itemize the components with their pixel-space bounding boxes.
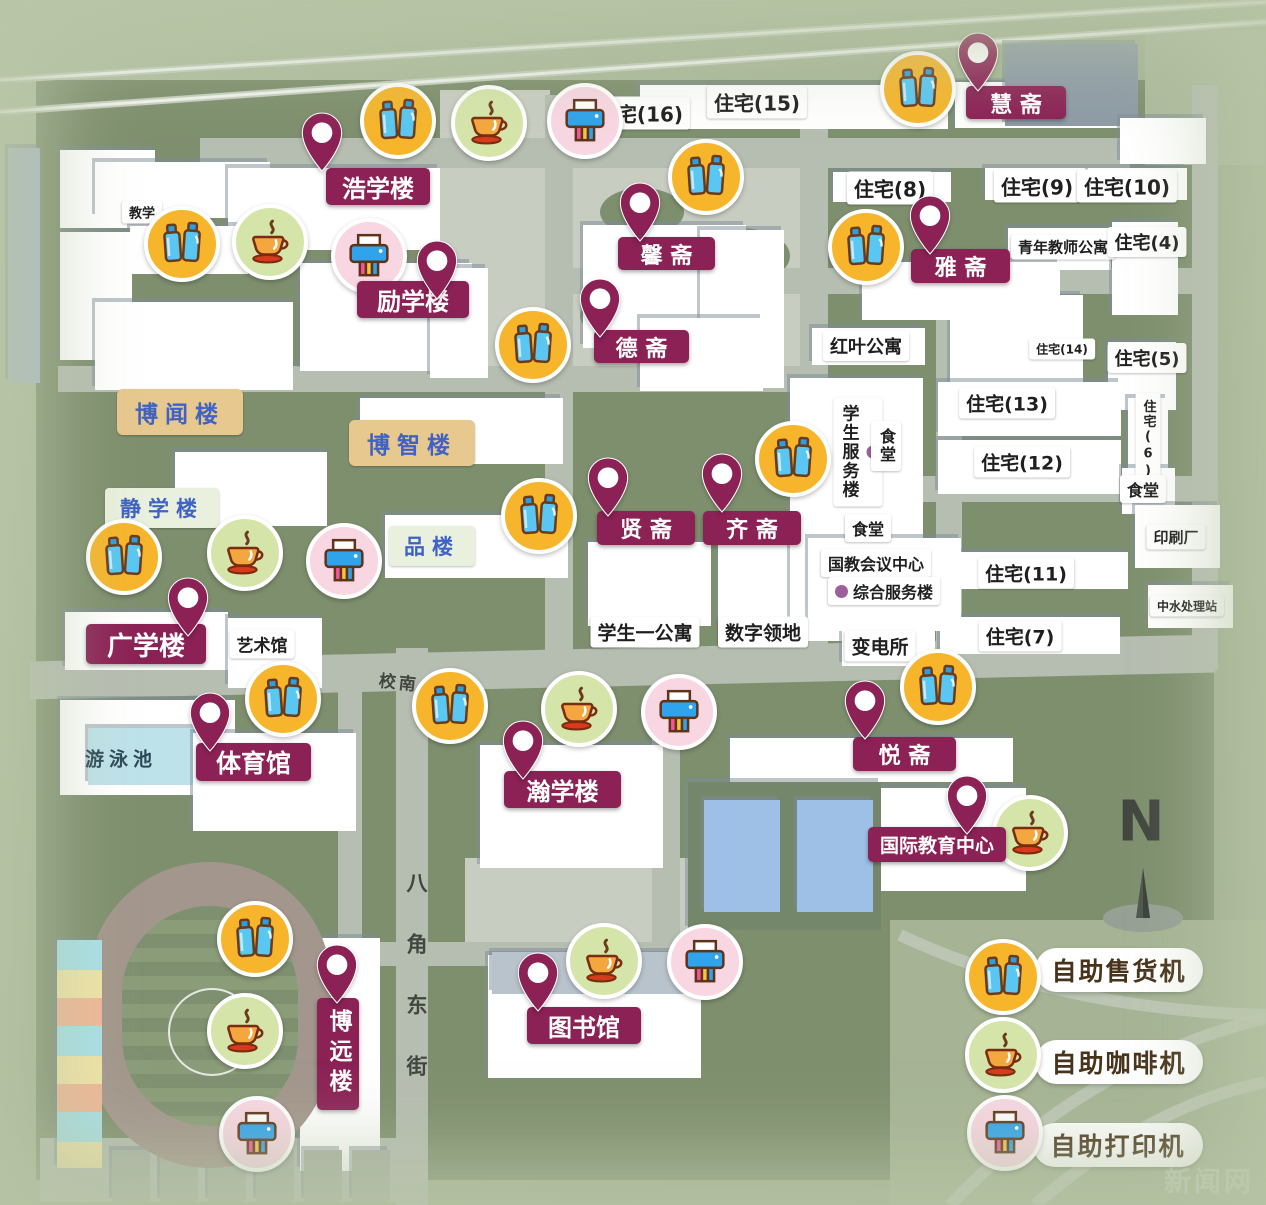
building-label: 青年教师公寓 bbox=[1011, 235, 1115, 260]
building-label: 住宅(13) bbox=[959, 388, 1055, 419]
compass-north-label: N bbox=[1118, 790, 1165, 855]
location-pin bbox=[617, 182, 663, 242]
vending-machine-icon bbox=[360, 83, 436, 159]
vending-machine-icon bbox=[495, 307, 571, 383]
printer-machine-icon bbox=[306, 523, 382, 599]
building-label: 住宅(12) bbox=[974, 447, 1070, 478]
building-label: 数字领地 bbox=[718, 617, 808, 648]
building-label-text: 数字领地 bbox=[725, 619, 801, 646]
campus-map: 住宅(16)住宅(15)住宅(8)住宅(9)住宅(10)青年教师公寓住宅(4)住… bbox=[0, 0, 1266, 1205]
building-label-text: 住宅(4) bbox=[1115, 229, 1180, 255]
location-pin bbox=[585, 457, 631, 517]
building-label: 住宅(5) bbox=[1108, 343, 1187, 373]
building-label: 住宅(10) bbox=[1077, 170, 1177, 203]
location-pin bbox=[577, 278, 623, 338]
building-label: 住宅(6) bbox=[1136, 393, 1161, 488]
coffee-machine-icon bbox=[541, 671, 617, 747]
building-label: 艺术馆 bbox=[230, 630, 295, 659]
vending-machine-icon bbox=[828, 209, 904, 285]
building-label: 食堂 bbox=[871, 421, 901, 471]
building-label-text: 食堂 bbox=[1127, 477, 1159, 501]
coffee-machine-icon bbox=[207, 515, 283, 591]
building-label: 食堂 bbox=[1120, 475, 1166, 503]
service-dot bbox=[835, 585, 848, 598]
building-label-text: 中水处理站 bbox=[1157, 598, 1217, 615]
location-pin bbox=[515, 952, 561, 1012]
vending-machine-icon bbox=[217, 901, 293, 977]
building-label: 住宅(9) bbox=[994, 170, 1080, 203]
vending-machine-icon bbox=[755, 421, 831, 497]
building-label-text: 博智楼 bbox=[367, 426, 457, 460]
legend-coffee-icon bbox=[965, 1017, 1041, 1093]
building-label: 博闻楼 bbox=[117, 389, 243, 435]
building-label-text: 住宅(12) bbox=[981, 449, 1063, 476]
building-label-text: 变电所 bbox=[851, 633, 908, 660]
building-label-text: 住宅(10) bbox=[1084, 172, 1170, 201]
legend-printer-icon bbox=[967, 1095, 1043, 1171]
location-pin bbox=[299, 112, 345, 172]
building-label-text: 食堂 bbox=[874, 428, 898, 464]
building-label-text: 住宅(7) bbox=[986, 623, 1055, 650]
legend-item-vending: 自助售货机 bbox=[1035, 948, 1203, 992]
location-pin bbox=[314, 944, 360, 1004]
building-label-text: 静学楼 bbox=[120, 493, 204, 523]
building-label-text: 住宅(13) bbox=[966, 390, 1048, 417]
building-label: 变电所 bbox=[844, 631, 915, 662]
poi-banner: 图书馆 bbox=[527, 1007, 641, 1044]
location-pin bbox=[842, 680, 888, 740]
vending-machine-icon bbox=[412, 668, 488, 744]
location-pin bbox=[907, 195, 953, 255]
building-label-text: 游泳池 bbox=[85, 745, 157, 772]
building-label-text: 国教会议中心 bbox=[828, 551, 924, 575]
coffee-machine-icon bbox=[566, 923, 642, 999]
building-label: 游泳池 bbox=[78, 743, 164, 774]
building-label: 住宅(15) bbox=[707, 86, 807, 119]
building-label-text: 住宅(11) bbox=[985, 560, 1067, 587]
watermark: 新闻网 bbox=[1164, 1160, 1254, 1199]
building-label-text: 学生服务楼 bbox=[837, 405, 862, 500]
building-label: 住宅(4) bbox=[1108, 227, 1187, 257]
building-label-text: 食堂 bbox=[852, 516, 884, 540]
location-pin bbox=[187, 692, 233, 752]
building-label-text: 博闻楼 bbox=[135, 395, 225, 429]
building-label-text: 住宅(5) bbox=[1115, 345, 1180, 371]
legend-vending-icon bbox=[965, 939, 1041, 1015]
building-label-text: 住宅(6) bbox=[1139, 400, 1158, 481]
building-label-text: 住宅(14) bbox=[1036, 341, 1088, 358]
poi-banner: 悦 斋 bbox=[853, 737, 956, 771]
poi-banner: 博远楼 bbox=[317, 998, 359, 1110]
vending-machine-icon bbox=[245, 661, 321, 737]
compass-rose-icon bbox=[1101, 868, 1185, 934]
coffee-machine-icon bbox=[451, 85, 527, 161]
building-label: 综合服务楼 bbox=[828, 577, 940, 605]
legend-item-coffee: 自助咖啡机 bbox=[1035, 1040, 1203, 1084]
printer-machine-icon bbox=[547, 83, 623, 159]
vending-machine-icon bbox=[668, 139, 744, 215]
location-pin bbox=[414, 240, 460, 300]
building-label-text: 综合服务楼 bbox=[853, 579, 933, 603]
printer-machine-icon bbox=[641, 674, 717, 750]
building-label: 博智楼 bbox=[349, 420, 475, 466]
building-label: 国教会议中心 bbox=[821, 549, 931, 577]
building-label-text: 青年教师公寓 bbox=[1018, 237, 1108, 258]
vending-machine-icon bbox=[144, 206, 220, 282]
building-label-text: 红叶公寓 bbox=[830, 333, 902, 359]
building-label: 品楼 bbox=[389, 526, 475, 566]
printer-machine-icon bbox=[667, 924, 743, 1000]
building-label: 住宅(11) bbox=[978, 558, 1074, 589]
building-label-text: 品楼 bbox=[404, 531, 460, 561]
vending-machine-icon bbox=[501, 478, 577, 554]
coffee-machine-icon bbox=[207, 993, 283, 1069]
building-label-text: 住宅(9) bbox=[1001, 172, 1073, 201]
vending-machine-icon bbox=[880, 51, 956, 127]
vending-machine-icon bbox=[900, 649, 976, 725]
poi-banner: 齐 斋 bbox=[703, 511, 801, 545]
poi-banner: 浩学楼 bbox=[326, 168, 430, 205]
location-pin bbox=[944, 775, 990, 835]
building-label: 中水处理站 bbox=[1150, 596, 1224, 617]
building-label: 红叶公寓 bbox=[823, 331, 909, 361]
location-pin bbox=[500, 720, 546, 780]
building-label-text: 住宅(15) bbox=[714, 88, 800, 117]
location-pin bbox=[699, 453, 745, 513]
printer-machine-icon bbox=[219, 1096, 295, 1172]
street-label: 八角东街 bbox=[401, 872, 431, 1116]
building-label: 住宅(7) bbox=[979, 621, 1062, 652]
vending-machine-icon bbox=[86, 519, 162, 595]
coffee-machine-icon bbox=[232, 204, 308, 280]
building-label: 学生一公寓 bbox=[590, 617, 699, 648]
building-label-text: 学生一公寓 bbox=[597, 619, 692, 646]
building-label: 食堂 bbox=[845, 514, 891, 542]
building-label-text: 印刷厂 bbox=[1153, 527, 1198, 548]
location-pin bbox=[955, 32, 1001, 92]
building-label-text: 教学 bbox=[129, 203, 155, 222]
building-label: 住宅(14) bbox=[1029, 339, 1095, 360]
building-label-text: 艺术馆 bbox=[237, 632, 288, 657]
location-pin bbox=[165, 577, 211, 637]
building-label: 印刷厂 bbox=[1146, 525, 1205, 550]
